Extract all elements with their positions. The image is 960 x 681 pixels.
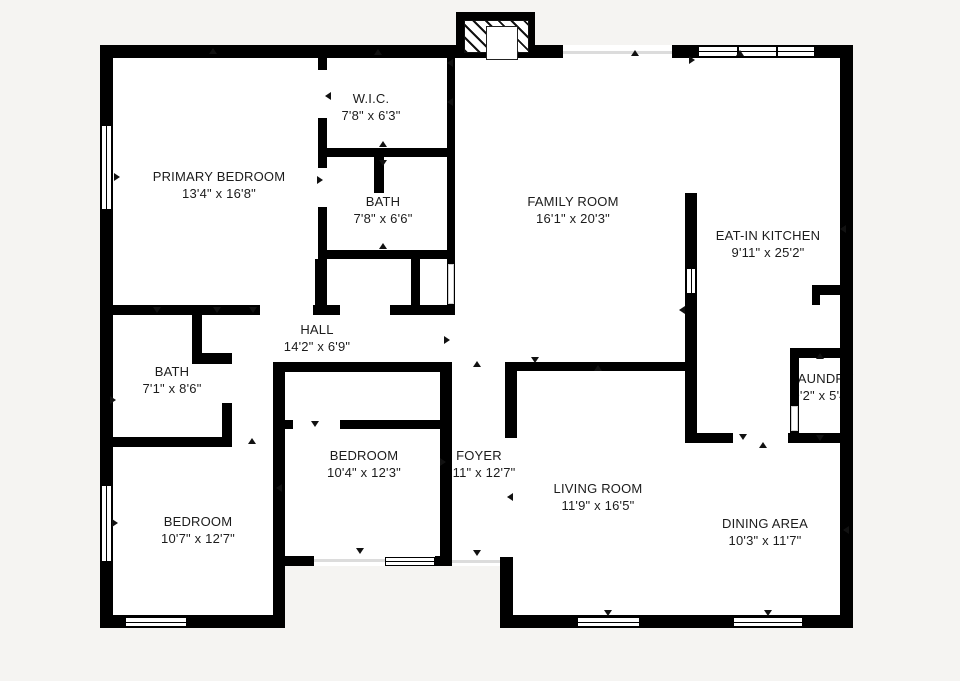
window-symbol xyxy=(698,46,815,57)
wall-segment xyxy=(685,193,697,443)
threshold-marker xyxy=(679,306,685,314)
threshold-marker xyxy=(209,48,217,54)
threshold-marker xyxy=(379,243,387,249)
threshold-marker xyxy=(594,365,602,371)
room-dimensions: 16'1" x 20'3" xyxy=(527,210,618,227)
window-divider xyxy=(776,47,778,56)
window-symbol xyxy=(125,617,187,627)
window-pane-line xyxy=(734,622,802,623)
room-dimensions: 3'11" x 12'7" xyxy=(443,464,516,481)
room-name: EAT-IN KITCHEN xyxy=(716,227,820,244)
room-label: FOYER3'11" x 12'7" xyxy=(443,447,516,481)
threshold-marker xyxy=(213,307,221,313)
room-dimensions: 7'1" x 8'6" xyxy=(142,380,201,397)
threshold-marker xyxy=(736,50,744,56)
threshold-marker xyxy=(840,225,846,233)
room-label: PRIMARY BEDROOM13'4" x 16'8" xyxy=(153,168,286,202)
room-label: BATH7'1" x 8'6" xyxy=(142,363,201,397)
wall-segment xyxy=(500,557,513,628)
window-pane-line xyxy=(691,269,692,293)
threshold-marker xyxy=(689,56,695,64)
room-dimensions: 10'4" x 12'3" xyxy=(327,464,401,481)
threshold-marker xyxy=(843,526,849,534)
wall-segment xyxy=(326,250,447,259)
room-name: PRIMARY BEDROOM xyxy=(153,168,286,185)
room-dimensions: 7'8" x 6'6" xyxy=(353,210,412,227)
wall-segment xyxy=(318,118,327,168)
wall-segment xyxy=(688,433,733,443)
wall-segment xyxy=(100,305,260,315)
room-dimensions: 11'9" x 16'5" xyxy=(554,497,643,514)
threshold-marker xyxy=(112,519,118,527)
threshold-marker xyxy=(356,548,364,554)
window-pane-line xyxy=(699,51,814,52)
threshold-marker xyxy=(604,610,612,616)
window-symbol xyxy=(577,617,640,627)
wall-segment xyxy=(340,420,450,429)
threshold-marker xyxy=(447,59,453,67)
room-name: BATH xyxy=(353,193,412,210)
wall-segment xyxy=(435,556,452,566)
room-label: BATH7'8" x 6'6" xyxy=(353,193,412,227)
room-label: BEDROOM10'7" x 12'7" xyxy=(161,513,235,547)
wall-opening xyxy=(563,51,672,54)
door-opening xyxy=(448,264,454,304)
window-pane-line xyxy=(106,486,107,561)
room-dimensions: 10'3" x 11'7" xyxy=(722,532,808,549)
room-name: HALL xyxy=(284,321,350,338)
threshold-marker xyxy=(764,610,772,616)
threshold-marker xyxy=(447,98,453,106)
room-name: LIVING ROOM xyxy=(554,480,643,497)
threshold-marker xyxy=(249,307,257,313)
room-dimensions: 10'7" x 12'7" xyxy=(161,530,235,547)
threshold-marker xyxy=(248,438,256,444)
window-pane-line xyxy=(386,561,434,562)
room-name: BEDROOM xyxy=(327,447,401,464)
wall-segment xyxy=(280,556,314,566)
threshold-marker xyxy=(473,550,481,556)
room-label: W.I.C.7'8" x 6'3" xyxy=(341,90,400,124)
floor-plan: W.I.C.7'8" x 6'3"PRIMARY BEDROOM13'4" x … xyxy=(0,0,960,681)
threshold-marker xyxy=(114,173,120,181)
threshold-marker xyxy=(276,484,282,492)
door-opening xyxy=(791,406,798,431)
wall-segment xyxy=(390,305,455,315)
threshold-marker xyxy=(440,458,446,466)
chimney-flue xyxy=(486,26,518,60)
threshold-marker xyxy=(379,160,387,166)
room-name: DINING AREA xyxy=(722,515,808,532)
room-label: LIVING ROOM11'9" x 16'5" xyxy=(554,480,643,514)
room-dimensions: 13'4" x 16'8" xyxy=(153,185,286,202)
threshold-marker xyxy=(325,92,331,100)
threshold-marker xyxy=(317,176,323,184)
window-pane-line xyxy=(126,622,186,623)
threshold-marker xyxy=(473,361,481,367)
threshold-marker xyxy=(444,336,450,344)
window-pane-line xyxy=(106,126,107,209)
room-name: BATH xyxy=(142,363,201,380)
threshold-marker xyxy=(739,434,747,440)
threshold-marker xyxy=(153,307,161,313)
threshold-marker xyxy=(816,435,824,441)
wall-segment xyxy=(313,305,340,315)
window-symbol xyxy=(101,485,112,562)
room-name: FOYER xyxy=(443,447,516,464)
wall-segment xyxy=(812,285,820,305)
threshold-marker xyxy=(374,49,382,55)
window-pane-line xyxy=(578,622,639,623)
wall-segment xyxy=(318,58,327,70)
window-symbol xyxy=(385,557,435,566)
wall-segment xyxy=(273,362,448,372)
wall-segment xyxy=(326,148,447,157)
window-symbol xyxy=(686,268,696,294)
room-label: FAMILY ROOM16'1" x 20'3" xyxy=(527,193,618,227)
window-symbol xyxy=(101,125,112,210)
room-name: FAMILY ROOM xyxy=(527,193,618,210)
wall-segment xyxy=(505,362,517,438)
window-symbol xyxy=(733,617,803,627)
wall-segment xyxy=(100,437,232,447)
threshold-marker xyxy=(531,357,539,363)
wall-segment xyxy=(374,148,384,193)
threshold-marker xyxy=(631,50,639,56)
threshold-marker xyxy=(311,421,319,427)
threshold-marker xyxy=(759,442,767,448)
threshold-marker xyxy=(110,396,116,404)
wall-segment xyxy=(840,45,853,628)
room-dimensions: 9'11" x 25'2" xyxy=(716,244,820,261)
room-dimensions: 14'2" x 6'9" xyxy=(284,338,350,355)
threshold-marker xyxy=(816,353,824,359)
wall-segment xyxy=(192,353,232,364)
threshold-marker xyxy=(507,493,513,501)
threshold-marker xyxy=(379,141,387,147)
wall-opening xyxy=(452,560,500,563)
room-label: EAT-IN KITCHEN9'11" x 25'2" xyxy=(716,227,820,261)
wall-segment xyxy=(285,420,293,429)
room-name: W.I.C. xyxy=(341,90,400,107)
room-label: BEDROOM10'4" x 12'3" xyxy=(327,447,401,481)
room-name: BEDROOM xyxy=(161,513,235,530)
wall-segment xyxy=(192,315,202,357)
room-dimensions: 7'8" x 6'3" xyxy=(341,107,400,124)
room-label: DINING AREA10'3" x 11'7" xyxy=(722,515,808,549)
room-label: HALL14'2" x 6'9" xyxy=(284,321,350,355)
wall-opening xyxy=(313,559,385,562)
